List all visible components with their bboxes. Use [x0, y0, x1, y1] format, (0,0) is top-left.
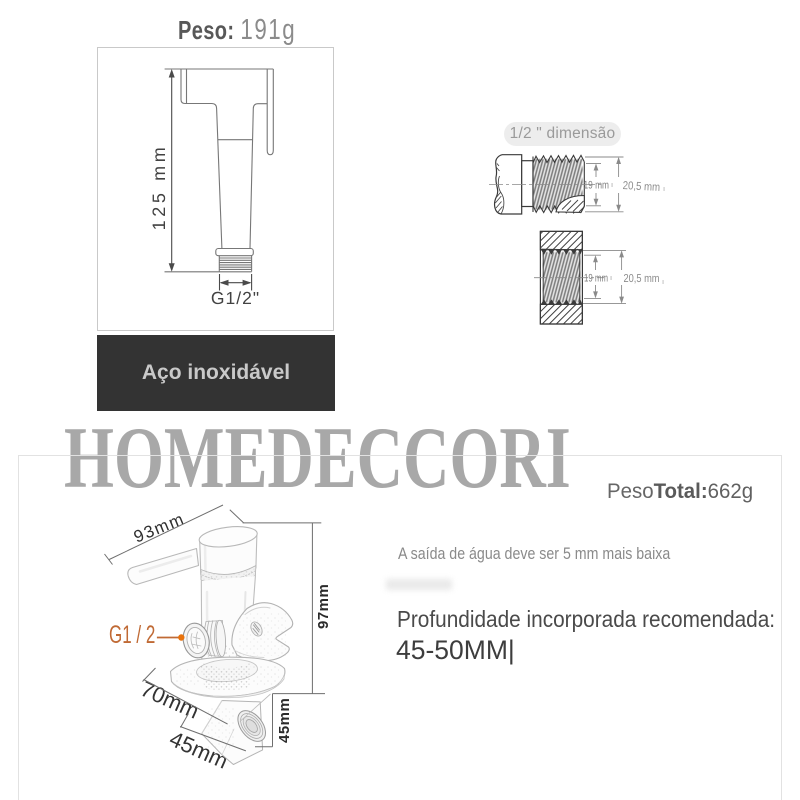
svg-text:19 mm: 19 mm [584, 180, 610, 192]
svg-text:125 mm: 125 mm [149, 144, 169, 231]
svg-text:ı: ı [662, 277, 664, 286]
svg-text:ı: ı [663, 184, 665, 193]
svg-text:ı: ı [611, 180, 613, 189]
svg-text:20,5 mm: 20,5 mm [624, 273, 660, 285]
svg-text:20,5 mm: 20,5 mm [622, 180, 660, 194]
svg-text:ı: ı [610, 273, 612, 282]
svg-text:19 mm: 19 mm [584, 273, 608, 285]
svg-text:G1/2": G1/2" [211, 288, 260, 308]
